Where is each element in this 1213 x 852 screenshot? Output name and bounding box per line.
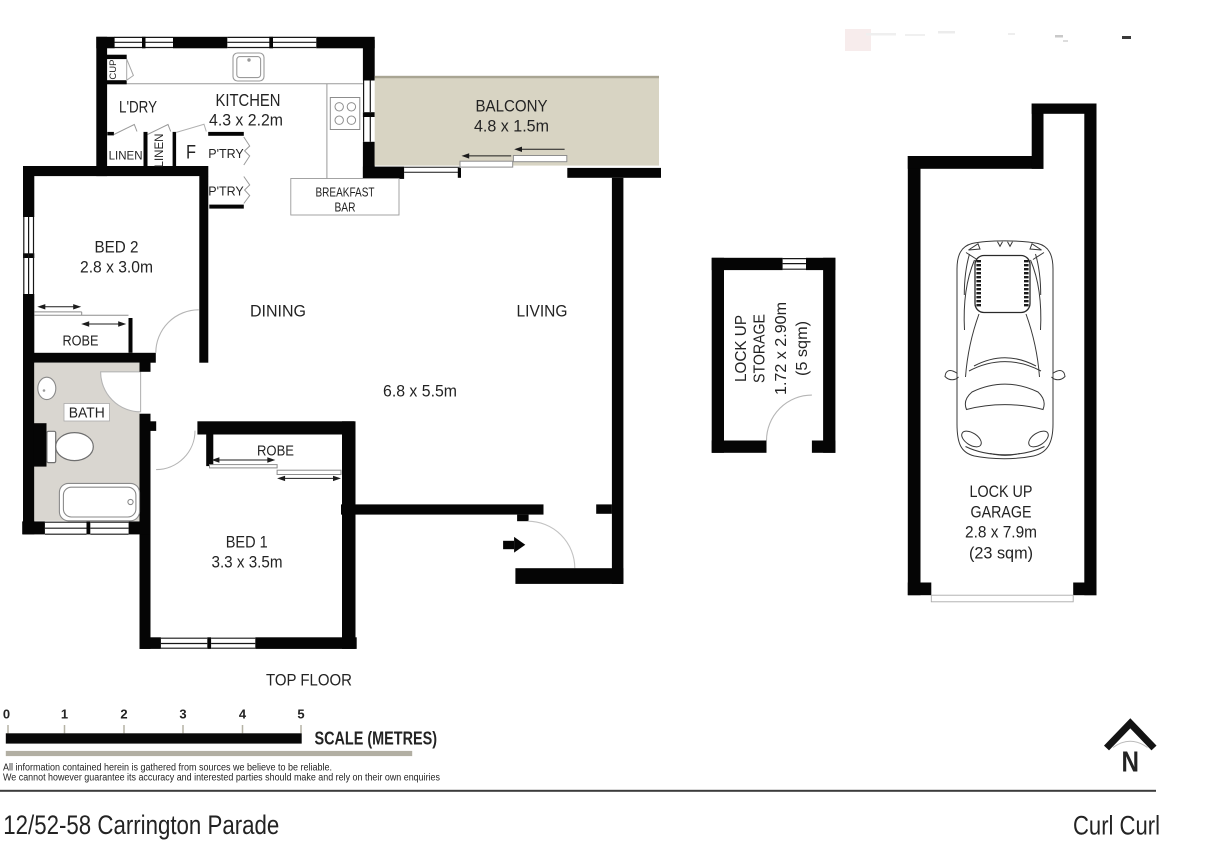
svg-text:SCALE (METRES): SCALE (METRES)	[315, 729, 438, 749]
svg-text:LINEN: LINEN	[154, 134, 166, 168]
svg-text:1: 1	[61, 707, 68, 722]
svg-text:LINEN: LINEN	[109, 151, 143, 163]
svg-text:2: 2	[120, 707, 127, 722]
svg-text:BED 2: BED 2	[95, 239, 139, 257]
svg-text:F: F	[186, 143, 196, 164]
svg-text:Curl Curl: Curl Curl	[1073, 811, 1160, 841]
svg-text:LOCK UP: LOCK UP	[970, 482, 1033, 501]
svg-text:P'TRY: P'TRY	[208, 185, 244, 199]
svg-text:L'DRY: L'DRY	[119, 99, 157, 117]
svg-text:4: 4	[239, 707, 247, 722]
svg-text:We cannot however guarantee it: We cannot however guarantee its accuracy…	[3, 773, 440, 784]
svg-text:BATH: BATH	[69, 406, 105, 422]
svg-text:CUP: CUP	[108, 60, 119, 80]
svg-text:4.8 x 1.5m: 4.8 x 1.5m	[474, 118, 549, 136]
svg-text:LOCK UP: LOCK UP	[733, 315, 750, 382]
svg-text:12/52-58 Carrington Parade: 12/52-58 Carrington Parade	[3, 810, 279, 840]
svg-text:0: 0	[3, 707, 10, 722]
svg-text:TOP FLOOR: TOP FLOOR	[266, 672, 352, 690]
svg-text:ROBE: ROBE	[63, 333, 99, 350]
svg-text:ROBE: ROBE	[257, 443, 294, 460]
svg-text:5: 5	[297, 707, 304, 722]
svg-text:BED 1: BED 1	[226, 534, 268, 552]
svg-text:BREAKFAST: BREAKFAST	[316, 185, 375, 200]
svg-text:(23 sqm): (23 sqm)	[969, 544, 1033, 563]
svg-text:(5 sqm): (5 sqm)	[794, 321, 811, 376]
svg-text:2.8 x 3.0m: 2.8 x 3.0m	[80, 259, 153, 277]
svg-text:3.3 x 3.5m: 3.3 x 3.5m	[212, 554, 283, 572]
svg-text:3: 3	[179, 707, 186, 722]
svg-text:BALCONY: BALCONY	[476, 98, 548, 116]
svg-text:LIVING: LIVING	[517, 303, 568, 321]
svg-text:BAR: BAR	[335, 200, 356, 215]
svg-text:KITCHEN: KITCHEN	[216, 90, 281, 110]
svg-text:P'TRY: P'TRY	[208, 147, 244, 161]
svg-text:DINING: DINING	[250, 303, 306, 321]
svg-text:1.72 x 2.90m: 1.72 x 2.90m	[773, 302, 790, 395]
svg-text:N: N	[1122, 747, 1140, 779]
svg-text:GARAGE: GARAGE	[971, 503, 1032, 522]
svg-text:STORAGE: STORAGE	[752, 314, 769, 383]
svg-text:6.8 x 5.5m: 6.8 x 5.5m	[383, 382, 457, 401]
svg-text:4.3 x 2.2m: 4.3 x 2.2m	[209, 111, 283, 130]
svg-text:2.8 x 7.9m: 2.8 x 7.9m	[965, 523, 1037, 542]
